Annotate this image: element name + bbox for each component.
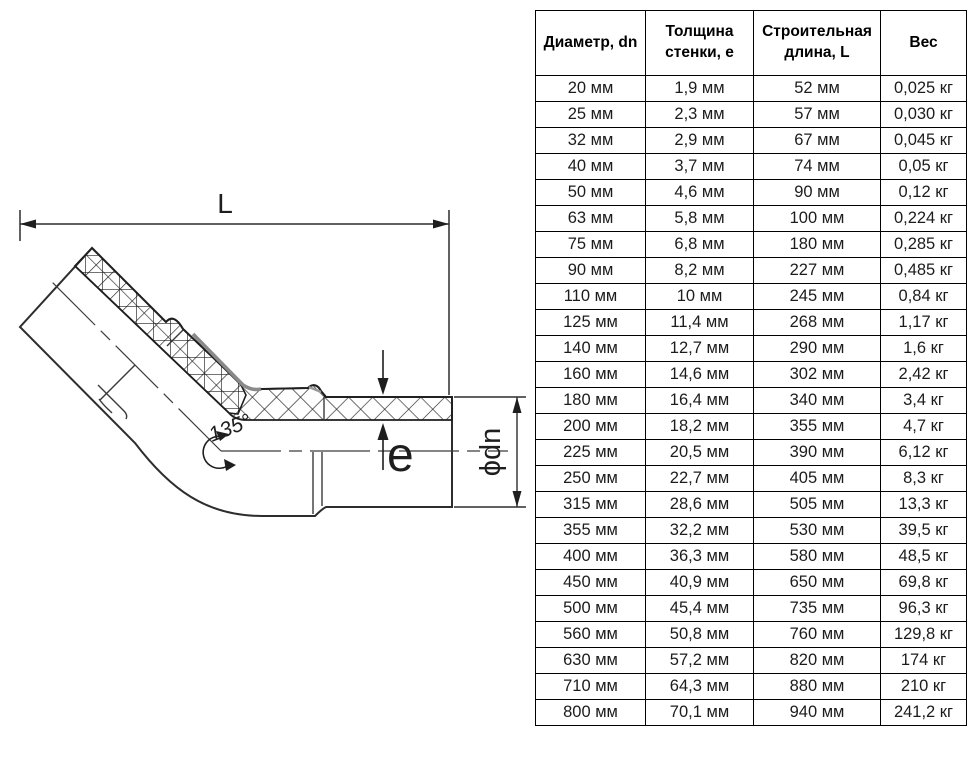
table-cell: 50,8 мм — [646, 622, 754, 648]
table-row: 50 мм4,6 мм90 мм0,12 кг — [536, 180, 967, 206]
table-cell: 180 мм — [754, 232, 881, 258]
table-cell: 8,3 кг — [881, 466, 967, 492]
table-row: 800 мм70,1 мм940 мм241,2 кг — [536, 700, 967, 726]
table-cell: 390 мм — [754, 440, 881, 466]
table-cell: 560 мм — [536, 622, 646, 648]
table-cell: 630 мм — [536, 648, 646, 674]
header-construction-length: Строительная длина, L — [754, 11, 881, 76]
table-cell: 450 мм — [536, 570, 646, 596]
table-cell: 0,285 кг — [881, 232, 967, 258]
table-cell: 227 мм — [754, 258, 881, 284]
table-row: 32 мм2,9 мм67 мм0,045 кг — [536, 128, 967, 154]
table-cell: 140 мм — [536, 336, 646, 362]
table-cell: 250 мм — [536, 466, 646, 492]
table-row: 560 мм50,8 мм760 мм129,8 кг — [536, 622, 967, 648]
table-cell: 75 мм — [536, 232, 646, 258]
table-cell: 70,1 мм — [646, 700, 754, 726]
label-dn: ϕdn — [475, 428, 507, 477]
header-wall-thickness: Толщина стенки, е — [646, 11, 754, 76]
table-cell: 32 мм — [536, 128, 646, 154]
table-cell: 940 мм — [754, 700, 881, 726]
table-cell: 405 мм — [754, 466, 881, 492]
table-cell: 580 мм — [754, 544, 881, 570]
table-cell: 210 кг — [881, 674, 967, 700]
table-cell: 63 мм — [536, 206, 646, 232]
table-cell: 57,2 мм — [646, 648, 754, 674]
table-cell: 110 мм — [536, 284, 646, 310]
table-cell: 500 мм — [536, 596, 646, 622]
table-cell: 225 мм — [536, 440, 646, 466]
table-cell: 11,4 мм — [646, 310, 754, 336]
table-cell: 22,7 мм — [646, 466, 754, 492]
table-cell: 355 мм — [754, 414, 881, 440]
table-cell: 5,8 мм — [646, 206, 754, 232]
table-cell: 0,485 кг — [881, 258, 967, 284]
table-cell: 6,8 мм — [646, 232, 754, 258]
table-cell: 180 мм — [536, 388, 646, 414]
table-cell: 32,2 мм — [646, 518, 754, 544]
table-cell: 1,17 кг — [881, 310, 967, 336]
table-cell: 36,3 мм — [646, 544, 754, 570]
table-cell: 40,9 мм — [646, 570, 754, 596]
table-cell: 3,7 мм — [646, 154, 754, 180]
table-row: 63 мм5,8 мм100 мм0,224 кг — [536, 206, 967, 232]
table-cell: 10 мм — [646, 284, 754, 310]
table-cell: 0,025 кг — [881, 76, 967, 102]
table-cell: 0,84 кг — [881, 284, 967, 310]
arrow-L-right — [433, 220, 449, 229]
table-cell: 530 мм — [754, 518, 881, 544]
table-cell: 1,9 мм — [646, 76, 754, 102]
table-header-row: Диаметр, dn Толщина стенки, е Строительн… — [536, 11, 967, 76]
table-cell: 74 мм — [754, 154, 881, 180]
table-cell: 2,3 мм — [646, 102, 754, 128]
table-cell: 64,3 мм — [646, 674, 754, 700]
table-cell: 125 мм — [536, 310, 646, 336]
table-cell: 760 мм — [754, 622, 881, 648]
table-cell: 290 мм — [754, 336, 881, 362]
table-cell: 14,6 мм — [646, 362, 754, 388]
table-cell: 355 мм — [536, 518, 646, 544]
table-cell: 57 мм — [754, 102, 881, 128]
arrow-dn-top — [513, 397, 522, 413]
table-row: 110 мм10 мм245 мм0,84 кг — [536, 284, 967, 310]
table-row: 630 мм57,2 мм820 мм174 кг — [536, 648, 967, 674]
table-cell: 69,8 кг — [881, 570, 967, 596]
table-cell: 28,6 мм — [646, 492, 754, 518]
table-cell: 880 мм — [754, 674, 881, 700]
table-cell: 0,05 кг — [881, 154, 967, 180]
table-row: 250 мм22,7 мм405 мм8,3 кг — [536, 466, 967, 492]
header-diameter: Диаметр, dn — [536, 11, 646, 76]
table-cell: 820 мм — [754, 648, 881, 674]
table-cell: 39,5 кг — [881, 518, 967, 544]
table-cell: 0,224 кг — [881, 206, 967, 232]
arrow-dn-bottom — [513, 491, 522, 507]
table-cell: 0,12 кг — [881, 180, 967, 206]
table-cell: 400 мм — [536, 544, 646, 570]
table-cell: 800 мм — [536, 700, 646, 726]
table-row: 140 мм12,7 мм290 мм1,6 кг — [536, 336, 967, 362]
table-cell: 16,4 мм — [646, 388, 754, 414]
table-cell: 40 мм — [536, 154, 646, 180]
table-row: 355 мм32,2 мм530 мм39,5 кг — [536, 518, 967, 544]
table-row: 180 мм16,4 мм340 мм3,4 кг — [536, 388, 967, 414]
table-cell: 129,8 кг — [881, 622, 967, 648]
table-cell: 340 мм — [754, 388, 881, 414]
table-cell: 20,5 мм — [646, 440, 754, 466]
table-row: 450 мм40,9 мм650 мм69,8 кг — [536, 570, 967, 596]
table-row: 90 мм8,2 мм227 мм0,485 кг — [536, 258, 967, 284]
table-cell: 710 мм — [536, 674, 646, 700]
table-cell: 67 мм — [754, 128, 881, 154]
table-cell: 241,2 кг — [881, 700, 967, 726]
table-cell: 18,2 мм — [646, 414, 754, 440]
table-cell: 650 мм — [754, 570, 881, 596]
table-header: Диаметр, dn Толщина стенки, е Строительн… — [536, 11, 967, 76]
table-cell: 302 мм — [754, 362, 881, 388]
elbow-drawing-svg: L e ϕdn 135° — [0, 0, 530, 759]
table-row: 75 мм6,8 мм180 мм0,285 кг — [536, 232, 967, 258]
table-cell: 505 мм — [754, 492, 881, 518]
table-cell: 4,6 мм — [646, 180, 754, 206]
table-row: 225 мм20,5 мм390 мм6,12 кг — [536, 440, 967, 466]
table-row: 25 мм2,3 мм57 мм0,030 кг — [536, 102, 967, 128]
table-cell: 100 мм — [754, 206, 881, 232]
table-cell: 90 мм — [536, 258, 646, 284]
table-cell: 2,42 кг — [881, 362, 967, 388]
table-cell: 52 мм — [754, 76, 881, 102]
table-cell: 25 мм — [536, 102, 646, 128]
table-cell: 1,6 кг — [881, 336, 967, 362]
table-row: 710 мм64,3 мм880 мм210 кг — [536, 674, 967, 700]
table-cell: 0,045 кг — [881, 128, 967, 154]
label-L: L — [217, 188, 233, 219]
table-row: 125 мм11,4 мм268 мм1,17 кг — [536, 310, 967, 336]
table-row: 200 мм18,2 мм355 мм4,7 кг — [536, 414, 967, 440]
table-cell: 45,4 мм — [646, 596, 754, 622]
table-row: 20 мм1,9 мм52 мм0,025 кг — [536, 76, 967, 102]
table-cell: 12,7 мм — [646, 336, 754, 362]
table-cell: 315 мм — [536, 492, 646, 518]
table-cell: 0,030 кг — [881, 102, 967, 128]
table-cell: 2,9 мм — [646, 128, 754, 154]
table-row: 400 мм36,3 мм580 мм48,5 кг — [536, 544, 967, 570]
table-cell: 245 мм — [754, 284, 881, 310]
elbow-drawing: L e ϕdn 135° — [0, 0, 530, 759]
table-cell: 268 мм — [754, 310, 881, 336]
table-cell: 50 мм — [536, 180, 646, 206]
table-cell: 6,12 кг — [881, 440, 967, 466]
table-body: 20 мм1,9 мм52 мм0,025 кг25 мм2,3 мм57 мм… — [536, 76, 967, 726]
table-cell: 4,7 кг — [881, 414, 967, 440]
header-weight: Вес — [881, 11, 967, 76]
table-row: 315 мм28,6 мм505 мм13,3 кг — [536, 492, 967, 518]
table-cell: 96,3 кг — [881, 596, 967, 622]
label-e: e — [387, 429, 414, 482]
table-row: 500 мм45,4 мм735 мм96,3 кг — [536, 596, 967, 622]
table-cell: 174 кг — [881, 648, 967, 674]
table-cell: 3,4 кг — [881, 388, 967, 414]
table-cell: 735 мм — [754, 596, 881, 622]
arrow-L-left — [20, 220, 36, 229]
table-cell: 20 мм — [536, 76, 646, 102]
arrow-e-down — [378, 378, 389, 395]
dimensions-table: Диаметр, dn Толщина стенки, е Строительн… — [535, 10, 967, 726]
table-cell: 90 мм — [754, 180, 881, 206]
table-cell: 160 мм — [536, 362, 646, 388]
table-cell: 8,2 мм — [646, 258, 754, 284]
table-cell: 13,3 кг — [881, 492, 967, 518]
table-row: 160 мм14,6 мм302 мм2,42 кг — [536, 362, 967, 388]
table-cell: 48,5 кг — [881, 544, 967, 570]
spec-sheet-page: L e ϕdn 135° — [0, 0, 979, 759]
table-row: 40 мм3,7 мм74 мм0,05 кг — [536, 154, 967, 180]
table-cell: 200 мм — [536, 414, 646, 440]
